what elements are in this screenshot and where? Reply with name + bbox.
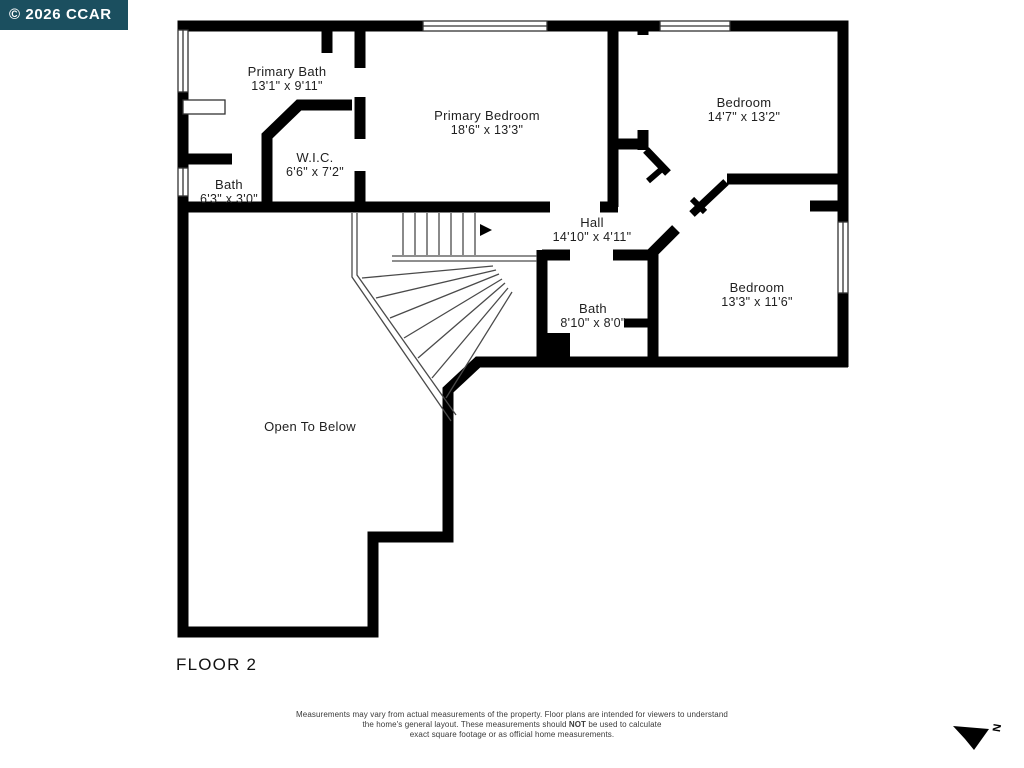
room-dims: 14'7" x 13'2": [708, 110, 780, 125]
compass-letter: N: [989, 723, 1002, 733]
floor-title: FLOOR 2: [176, 655, 257, 675]
window-left-lower: [178, 168, 188, 196]
room-name: Primary Bedroom: [434, 108, 540, 123]
door-swings: [646, 150, 726, 214]
room-name: Bedroom: [708, 95, 780, 110]
room-label-bedroom-1: Bedroom 14'7" x 13'2": [708, 95, 780, 125]
room-dims: 8'10" x 8'0": [560, 316, 625, 331]
windows: [178, 21, 848, 293]
window-left-upper: [178, 30, 188, 92]
room-label-open-to-below: Open To Below: [264, 419, 356, 434]
stair-direction-arrow-icon: [480, 224, 492, 236]
room-label-bath-2: Bath 8'10" x 8'0": [560, 301, 625, 331]
room-name: Bath: [200, 177, 258, 192]
room-label-wic: W.I.C. 6'6" x 7'2": [286, 150, 344, 180]
room-dims: 13'3" x 11'6": [721, 295, 793, 310]
room-label-primary-bedroom: Primary Bedroom 18'6" x 13'3": [434, 108, 540, 138]
disclaimer-line-2-post: be used to calculate: [586, 720, 661, 729]
room-label-hall: Hall 14'10" x 4'11": [553, 215, 632, 245]
window-top-bedroom: [660, 21, 730, 31]
room-name: Hall: [553, 215, 632, 230]
vanity-counter: [183, 100, 225, 114]
copyright-badge: © 2026 CCAR: [0, 0, 128, 30]
room-label-primary-bath: Primary Bath 13'1" x 9'11": [248, 64, 327, 94]
window-right-bedroom2: [838, 222, 848, 293]
room-dims: 14'10" x 4'11": [553, 230, 632, 245]
room-dims: 13'1" x 9'11": [248, 79, 327, 94]
room-dims: 6'3" x 3'0": [200, 192, 258, 207]
room-label-bath-1: Bath 6'3" x 3'0": [200, 177, 258, 207]
disclaimer-line-2: the home's general layout. These measure…: [232, 720, 792, 730]
room-name: Bedroom: [721, 280, 793, 295]
room-name: W.I.C.: [286, 150, 344, 165]
room-name: Primary Bath: [248, 64, 327, 79]
room-label-bedroom-2: Bedroom 13'3" x 11'6": [721, 280, 793, 310]
disclaimer-line-3: exact square footage or as official home…: [232, 730, 792, 740]
disclaimer-line-1: Measurements may vary from actual measur…: [232, 710, 792, 720]
north-arrow-icon: [953, 726, 989, 750]
chase-block: [537, 333, 570, 364]
room-name: Open To Below: [264, 419, 356, 434]
room-dims: 6'6" x 7'2": [286, 165, 344, 180]
compass: N: [953, 723, 1003, 750]
disclaimer-line-2-pre: the home's general layout. These measure…: [362, 720, 568, 729]
disclaimer-line-2-bold: NOT: [569, 720, 586, 729]
floorplan-page: N © 2026 CCAR Primary Bath 13'1" x 9'11"…: [0, 0, 1024, 768]
window-top-primary-bedroom: [423, 21, 547, 31]
room-name: Bath: [560, 301, 625, 316]
room-dims: 18'6" x 13'3": [434, 123, 540, 138]
disclaimer-text: Measurements may vary from actual measur…: [232, 710, 792, 740]
